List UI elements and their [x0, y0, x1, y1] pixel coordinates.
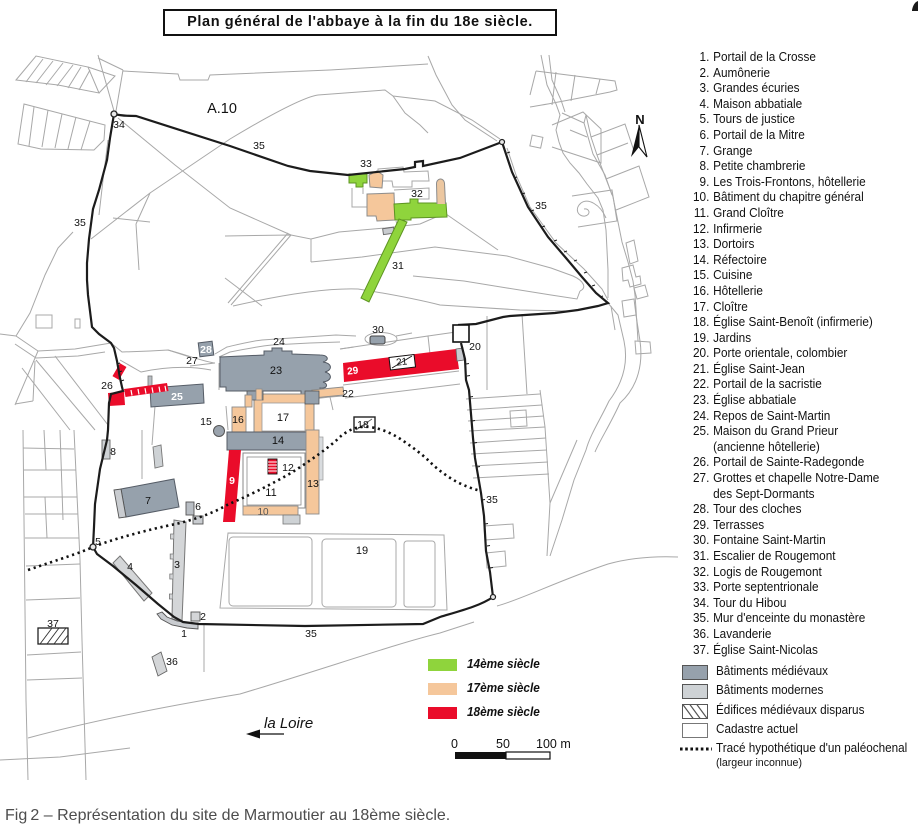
- svg-text:21: 21: [396, 356, 409, 368]
- svg-text:A.10: A.10: [207, 101, 237, 117]
- svg-text:12: 12: [282, 462, 294, 474]
- svg-text:35: 35: [486, 494, 498, 506]
- svg-text:27: 27: [186, 355, 198, 367]
- svg-text:25: 25: [171, 391, 183, 403]
- svg-text:11: 11: [265, 487, 276, 499]
- svg-text:4: 4: [127, 561, 133, 573]
- svg-text:24: 24: [273, 336, 285, 348]
- svg-text:31: 31: [392, 260, 404, 272]
- svg-text:37: 37: [47, 618, 59, 630]
- svg-text:1: 1: [181, 628, 187, 640]
- svg-text:35: 35: [305, 628, 317, 640]
- svg-text:32: 32: [411, 188, 423, 200]
- svg-text:9: 9: [229, 475, 235, 487]
- svg-text:0: 0: [451, 737, 458, 751]
- svg-text:17: 17: [277, 412, 289, 424]
- svg-text:35: 35: [74, 217, 86, 229]
- svg-text:7: 7: [145, 495, 151, 507]
- svg-text:15: 15: [200, 416, 212, 428]
- svg-text:la Loire: la Loire: [264, 715, 313, 732]
- svg-text:50: 50: [496, 737, 510, 751]
- svg-text:10: 10: [257, 507, 269, 518]
- svg-text:20: 20: [469, 341, 481, 353]
- svg-text:29: 29: [347, 365, 360, 377]
- svg-text:34: 34: [113, 119, 125, 131]
- svg-text:16: 16: [232, 414, 244, 426]
- svg-text:22: 22: [342, 388, 354, 400]
- svg-text:33: 33: [360, 158, 372, 170]
- svg-text:19: 19: [356, 545, 368, 557]
- svg-text:14: 14: [272, 435, 284, 447]
- svg-text:13: 13: [307, 478, 319, 490]
- svg-text:26: 26: [101, 380, 113, 392]
- svg-text:35: 35: [253, 140, 265, 152]
- svg-text:3: 3: [174, 559, 180, 571]
- svg-text:N: N: [635, 112, 644, 127]
- svg-text:6: 6: [195, 501, 201, 513]
- svg-text:8: 8: [110, 446, 116, 458]
- svg-text:28: 28: [200, 344, 212, 356]
- svg-text:18: 18: [357, 419, 369, 431]
- svg-text:30: 30: [372, 324, 384, 336]
- svg-text:2: 2: [200, 611, 206, 623]
- svg-text:23: 23: [270, 365, 282, 377]
- svg-text:35: 35: [535, 200, 547, 212]
- svg-text:100 m: 100 m: [536, 737, 571, 751]
- svg-text:5: 5: [95, 536, 101, 548]
- svg-text:36: 36: [166, 656, 178, 668]
